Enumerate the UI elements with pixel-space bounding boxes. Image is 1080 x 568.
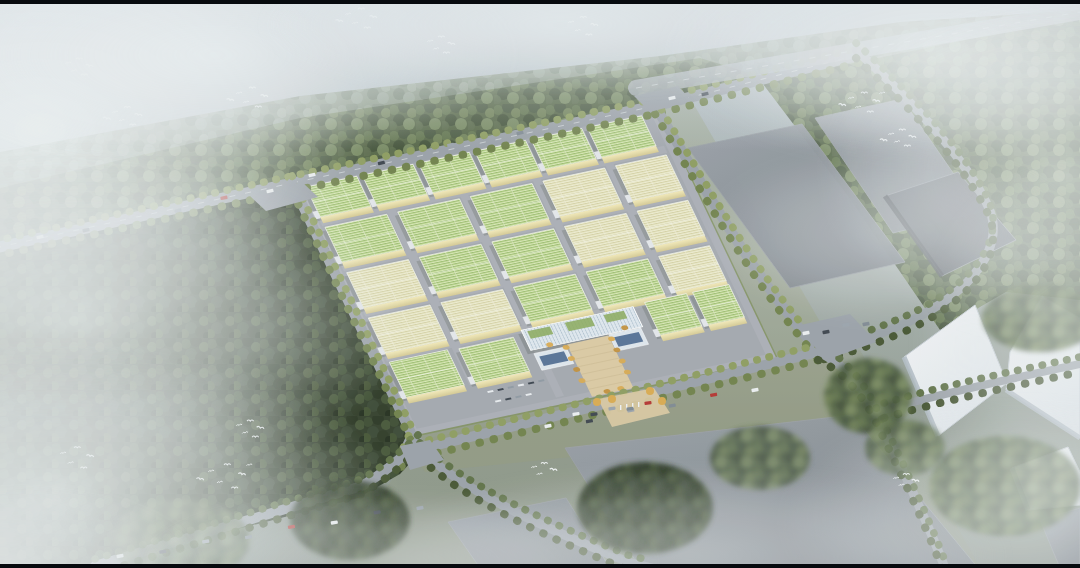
aerial-rendering bbox=[0, 0, 1080, 568]
atmosphere-veil bbox=[0, 0, 1080, 568]
rendering-viewport bbox=[0, 0, 1080, 568]
letterbox-bottom bbox=[0, 564, 1080, 568]
layer-fog bbox=[0, 0, 1080, 568]
letterbox-top bbox=[0, 0, 1080, 4]
